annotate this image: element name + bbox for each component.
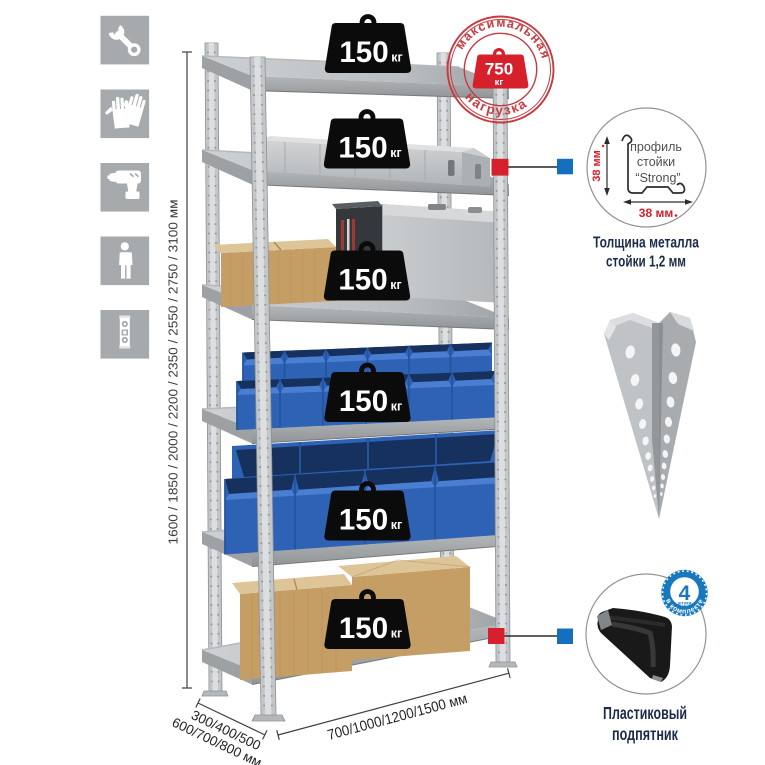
svg-text:кг: кг <box>391 518 402 532</box>
svg-text:кг: кг <box>390 278 401 292</box>
svg-text:750: 750 <box>485 60 513 79</box>
svg-text:“Strong”: “Strong” <box>635 171 680 185</box>
svg-text:профиль: профиль <box>630 140 682 154</box>
svg-text:подпятник: подпятник <box>612 724 678 744</box>
svg-text:стойки: стойки <box>637 155 675 169</box>
svg-text:150: 150 <box>339 36 388 69</box>
svg-text:150: 150 <box>338 132 387 165</box>
svg-text:кг: кг <box>391 400 402 414</box>
svg-text:кг: кг <box>391 51 402 65</box>
svg-text:Толщина металла: Толщина металла <box>593 235 699 252</box>
svg-text:38 мм: 38 мм <box>639 206 674 220</box>
svg-text:150: 150 <box>339 385 388 418</box>
svg-text:Пластиковый: Пластиковый <box>603 703 687 723</box>
svg-text:кг: кг <box>495 77 504 88</box>
svg-text:кг: кг <box>391 627 402 641</box>
svg-text:150: 150 <box>339 504 388 537</box>
svg-text:150: 150 <box>339 612 388 645</box>
svg-text:штуки: штуки <box>678 601 692 606</box>
svg-text:38 мм: 38 мм <box>591 150 603 182</box>
svg-text:кг: кг <box>390 146 401 160</box>
svg-text:1600 / 1850 / 2000 / 2200 / 23: 1600 / 1850 / 2000 / 2200 / 2350 / 2550 … <box>166 199 181 544</box>
svg-text:150: 150 <box>338 264 387 297</box>
svg-text:стойки 1,2 мм: стойки 1,2 мм <box>606 254 686 271</box>
